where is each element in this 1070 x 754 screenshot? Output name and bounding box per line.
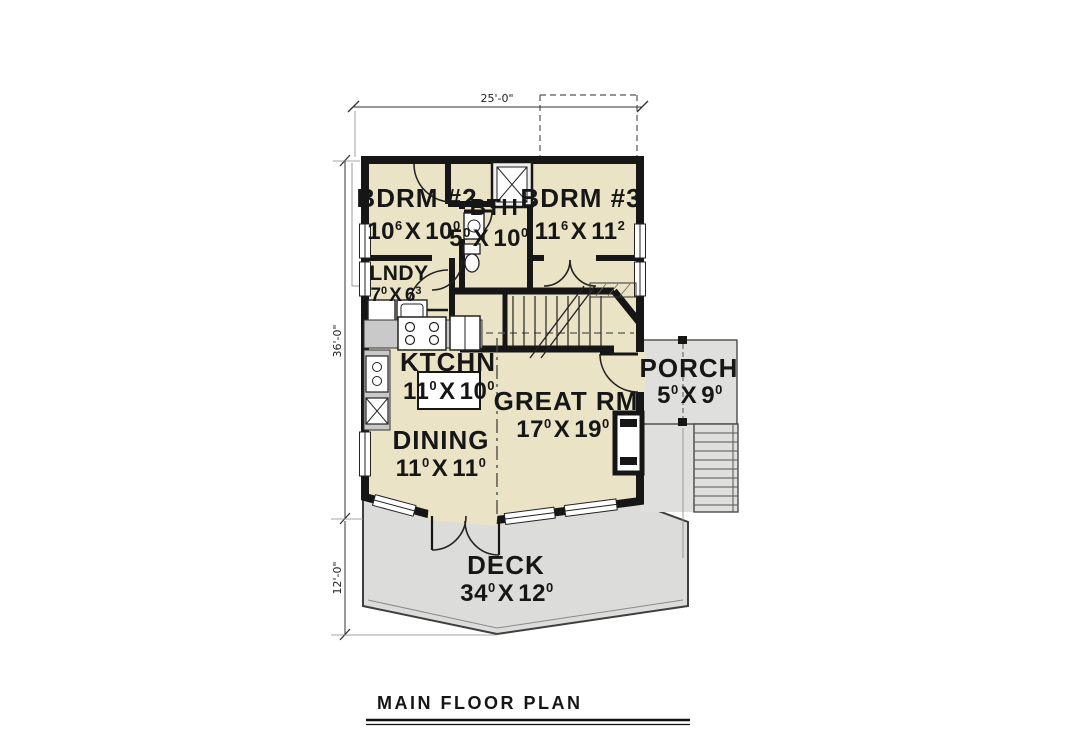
room-dim: 116X112 bbox=[535, 218, 626, 245]
room-dim: 50X90 bbox=[657, 382, 723, 409]
plan-title: MAIN FLOOR PLAN bbox=[377, 693, 583, 713]
porch-post bbox=[678, 336, 687, 344]
room-name: BTH bbox=[470, 194, 519, 220]
room-name: LNDY bbox=[369, 262, 428, 285]
room-name: KTCHN bbox=[400, 347, 496, 377]
title-block: MAIN FLOOR PLAN bbox=[366, 693, 690, 725]
window bbox=[635, 224, 646, 258]
fireplace bbox=[615, 413, 642, 473]
room-dim: 70X63 bbox=[370, 285, 421, 306]
floor-plan-canvas: BDRM #2 106X100 BTH 50X100 BDRM #3 116X1… bbox=[0, 0, 1070, 754]
roof-overhang-outline bbox=[540, 95, 637, 157]
kitchen-sink bbox=[366, 356, 388, 392]
refrigerator bbox=[450, 316, 480, 350]
deck-door-opening bbox=[428, 514, 497, 520]
dimension-left-lower-label: 12'-0" bbox=[331, 561, 344, 594]
room-dim: 110X110 bbox=[396, 455, 487, 482]
room-dim: 110X100 bbox=[403, 378, 495, 405]
exterior-stairs bbox=[694, 424, 738, 512]
room-dim: 106X100 bbox=[367, 218, 460, 245]
porch-post bbox=[678, 418, 687, 426]
window bbox=[360, 432, 371, 476]
room-name: BDRM #2 bbox=[356, 183, 477, 213]
kitchen-counter-left bbox=[364, 350, 390, 430]
room-dim: 340X120 bbox=[460, 580, 553, 607]
room-label-ktchn: KTCHN 110X100 bbox=[400, 347, 496, 405]
floor-plan-drawing: BDRM #2 106X100 BTH 50X100 BDRM #3 116X1… bbox=[0, 0, 1070, 754]
room-label-dining: DINING 110X110 bbox=[393, 425, 490, 482]
dimension-left-upper-label: 36'-0" bbox=[331, 324, 344, 357]
room-name: DINING bbox=[393, 425, 490, 455]
dimension-top-label: 25'-0" bbox=[480, 92, 513, 105]
room-label-deck: DECK 340X120 bbox=[460, 550, 553, 607]
room-dim: 170X190 bbox=[516, 416, 609, 443]
room-name: PORCH bbox=[640, 353, 739, 383]
room-name: DECK bbox=[467, 550, 545, 580]
dimension-top bbox=[348, 101, 648, 157]
room-name: BDRM #3 bbox=[520, 183, 641, 213]
stove bbox=[398, 317, 446, 350]
room-name: GREAT RM bbox=[494, 386, 639, 416]
room-dim: 50X100 bbox=[449, 225, 529, 252]
